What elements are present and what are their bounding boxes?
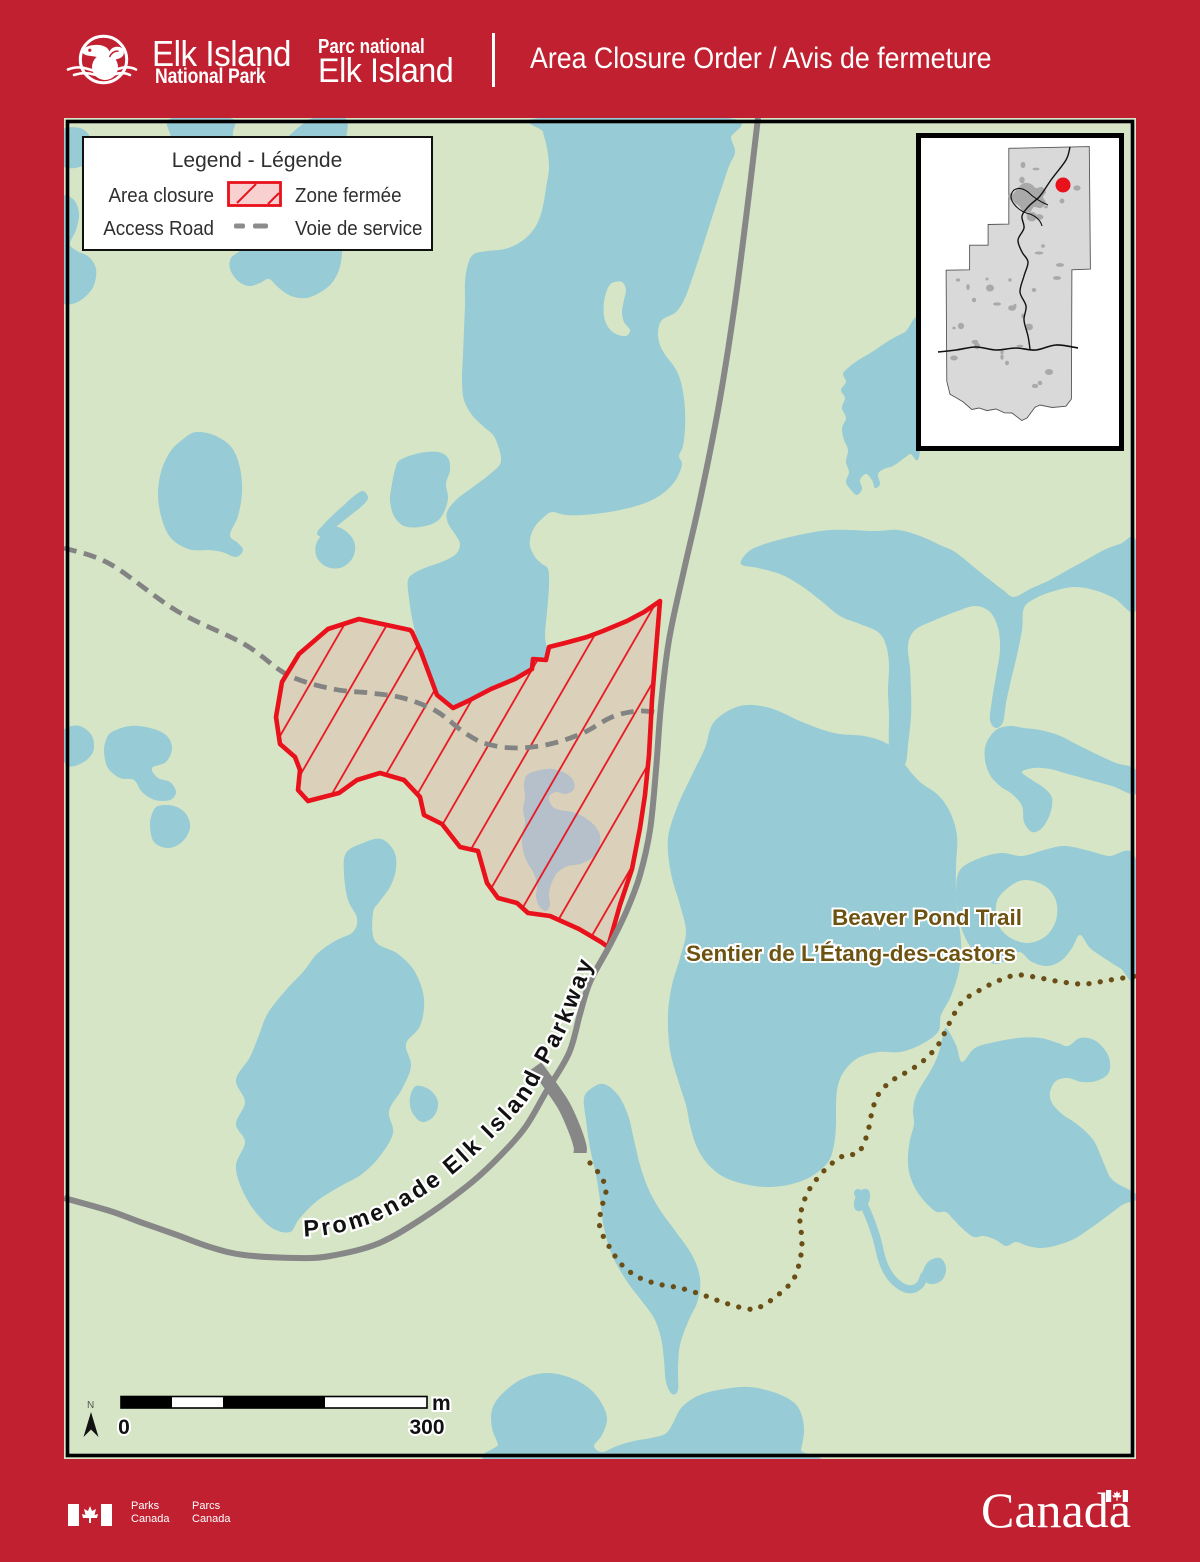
svg-text:N: N [87, 1400, 94, 1411]
svg-text:0: 0 [118, 1416, 130, 1439]
svg-text:m: m [432, 1392, 451, 1415]
svg-text:300: 300 [409, 1416, 444, 1439]
svg-text:Sentier de L’Étang-des-castors: Sentier de L’Étang-des-castors [686, 941, 1016, 966]
svg-text:Beaver Pond Trail: Beaver Pond Trail [832, 905, 1022, 930]
